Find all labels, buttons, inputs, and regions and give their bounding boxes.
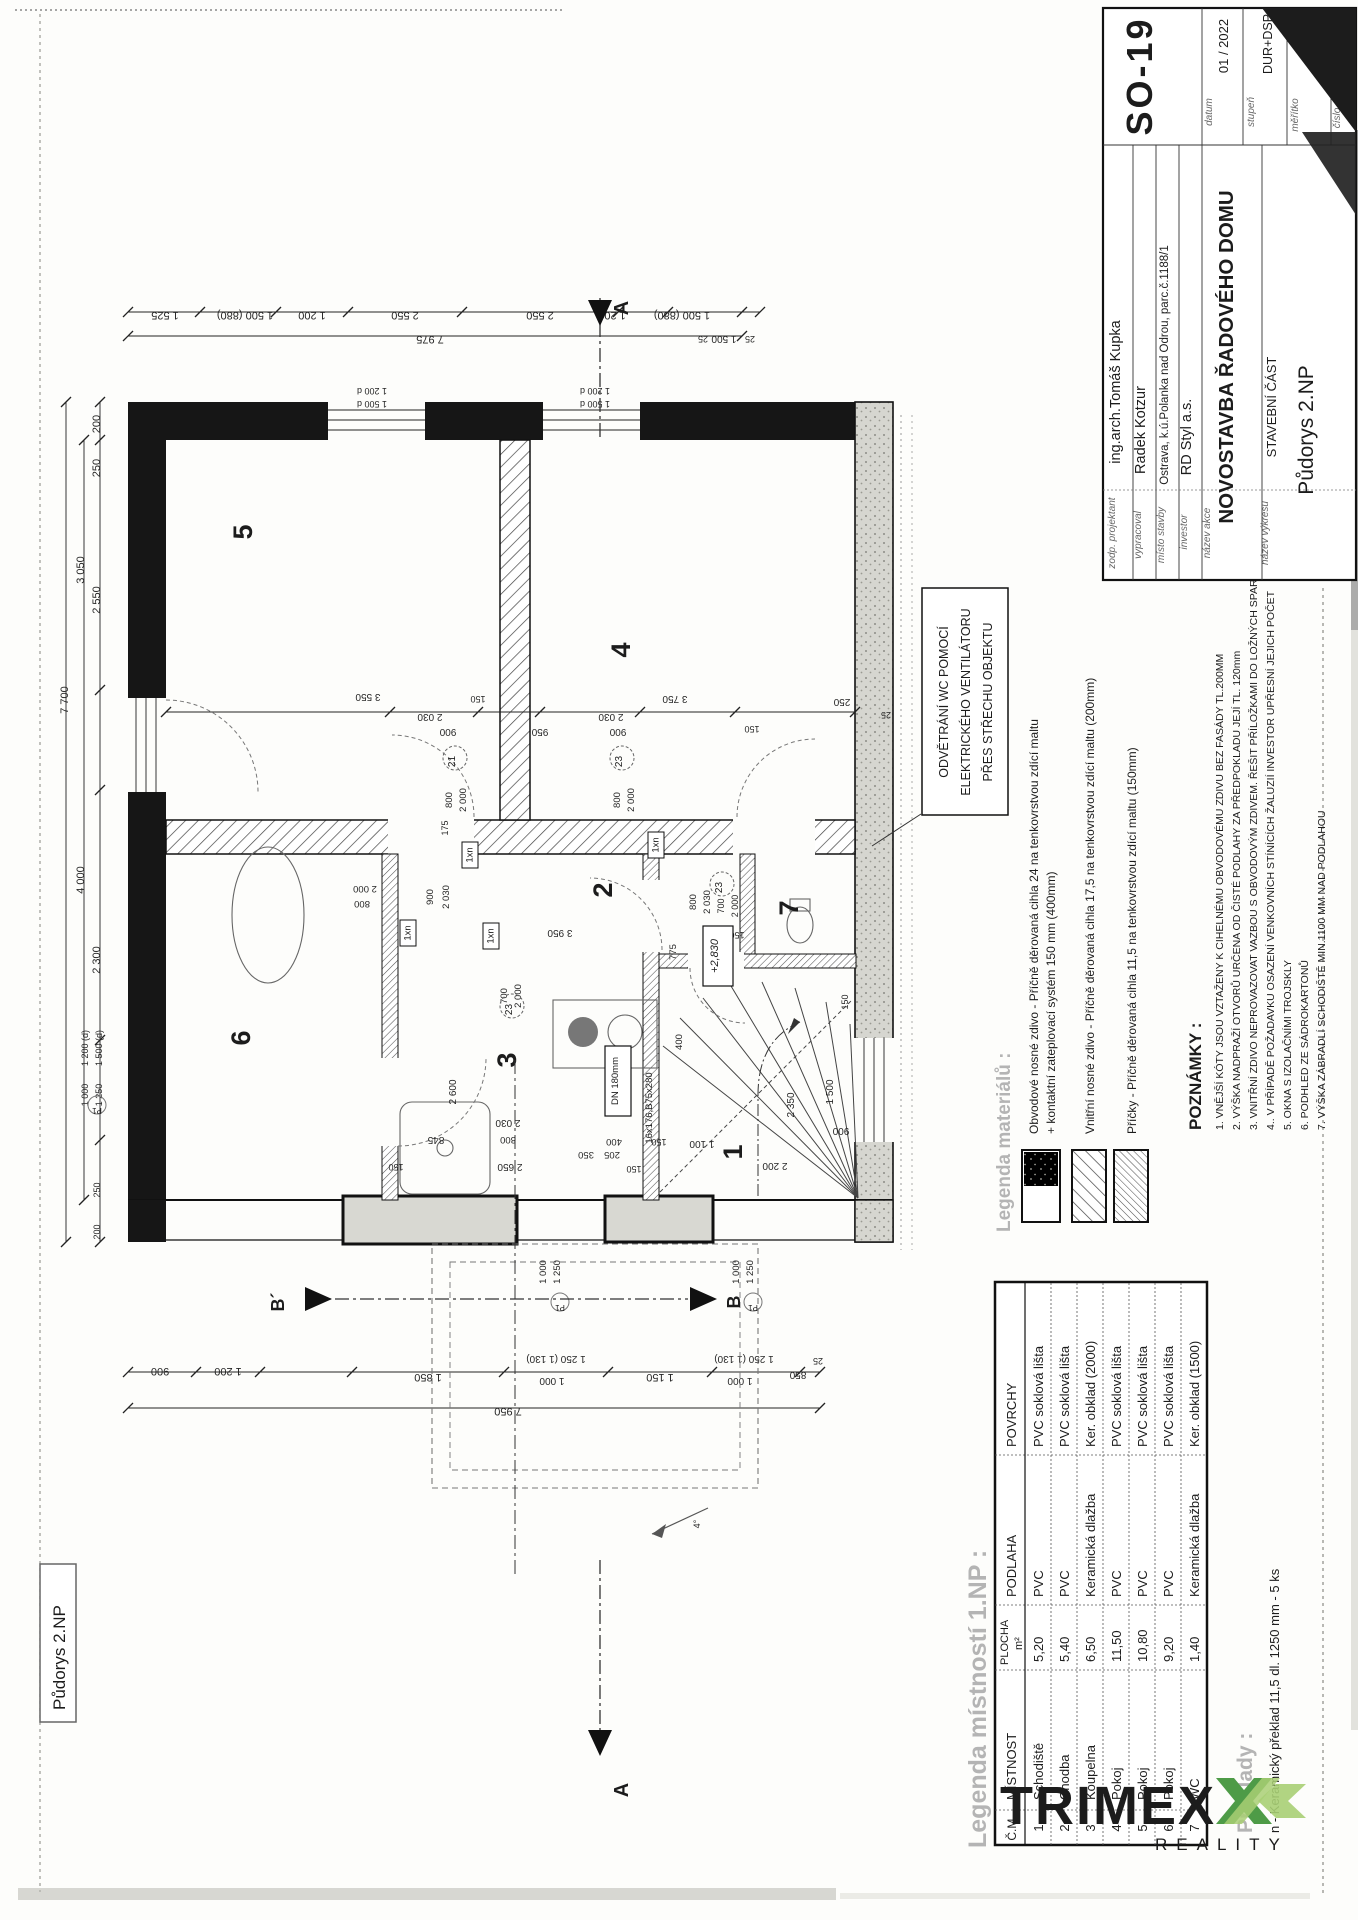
room-number: 6 xyxy=(226,1030,256,1045)
misto-value: Ostrava, k.ú.Polanka nad Odrou, parc.č.1… xyxy=(1159,245,1171,485)
table-cell-povrchy: Ker. obklad (2000) xyxy=(1083,1341,1098,1447)
table-cell-podlaha: PVC xyxy=(1031,1570,1046,1597)
dimension-text: 150 xyxy=(470,694,485,704)
door-opening xyxy=(640,880,662,952)
table-cell-podlaha: PVC xyxy=(1109,1570,1124,1597)
dimension-text: 1 200 xyxy=(214,1365,242,1377)
dimension-text: 400 xyxy=(606,1136,622,1147)
bathtub xyxy=(232,847,304,983)
dimension-text: 1 500 (880) xyxy=(654,309,710,321)
materials-legend: Legenda materiálů : Obvodové nosné zdivo… xyxy=(994,678,1148,1232)
dimension-text: 2 550 xyxy=(526,309,554,321)
room-number: 7 xyxy=(774,900,804,915)
dimension-text: 1 200 (d) xyxy=(80,1030,90,1066)
dimension-text: 1 150 xyxy=(646,1371,674,1383)
nazev-vykresu-label: název výkresu xyxy=(1260,501,1271,565)
french-window-1 xyxy=(343,1196,517,1244)
dimension-text: 2 030 xyxy=(598,711,623,722)
section-b-arrow xyxy=(690,1287,717,1311)
dimension-text: 400 xyxy=(674,1034,685,1050)
vent-callout: ODVĚTRÁNÍ WC POMOCÍ ELEKTRICKÉHO VENTILÁ… xyxy=(922,588,1008,815)
dimension-text: 1 250 xyxy=(745,1260,756,1284)
projektant-label: zodp. projektant xyxy=(1107,496,1118,569)
table-cell-plocha: 5,40 xyxy=(1057,1637,1072,1662)
table-cell-povrchy: PVC soklová lišta xyxy=(1161,1345,1176,1447)
dimension-text: 900 xyxy=(609,726,626,737)
dimension-text: 1 200 d xyxy=(357,386,387,396)
dimension-text: 2 000 xyxy=(458,788,469,812)
door-tag-number: 23 xyxy=(714,882,725,894)
swatch-exterior-insulation xyxy=(1024,1152,1058,1186)
nazev-akce-label: název akce xyxy=(1202,507,1213,558)
dimension-text: 1 850 xyxy=(414,1371,442,1383)
dimension-text: 2 030 xyxy=(417,711,442,722)
door-tag-number: 23 xyxy=(504,1004,515,1016)
room-number: 3 xyxy=(492,1052,522,1067)
materials-legend-title: Legenda materiálů : xyxy=(994,1053,1015,1233)
dimension-text: 775 xyxy=(668,944,679,960)
materials-item1-line2: + kontaktní zateplovací systém 150 mm (4… xyxy=(1044,872,1058,1134)
table-cell-podlaha: Keramická dlažba xyxy=(1187,1493,1202,1597)
frame-label-box: Půdorys 2.NP xyxy=(40,1564,76,1722)
dimension-text: 2 600 xyxy=(448,1079,459,1104)
dimension-text: 845 xyxy=(427,1134,444,1145)
dimension-text: 205 xyxy=(604,1149,620,1160)
position-tag-text: P1 xyxy=(555,1303,565,1312)
window-right xyxy=(852,1038,896,1142)
room-number: 5 xyxy=(228,524,258,539)
dimension-text: 800 xyxy=(612,792,623,808)
dimension-text: 900 xyxy=(425,889,436,905)
level-label: +2,830 xyxy=(709,938,721,973)
materials-item2-line1: Vnitřní nosné zdivo - Příčně děrovaná ci… xyxy=(1083,678,1097,1134)
note-1: 1. VNĚJŠÍ KÓTY JSOU VZTAŽENY K CIHELNÉMU… xyxy=(1213,654,1226,1130)
note-3: 3. VNITŘNÍ ZDIVO NEPROVAZOVAT VAZBOU S O… xyxy=(1247,579,1260,1130)
dimension-text: 1 500 xyxy=(825,1079,836,1104)
room-number: 4 xyxy=(606,642,636,657)
dimension-text: 3 950 xyxy=(547,927,572,938)
dimension-text: 2 000 xyxy=(353,883,377,894)
dimension-text: 250 xyxy=(91,459,103,477)
table-cell-plocha: 6,50 xyxy=(1083,1637,1098,1662)
room-legend-title: Legenda místností 1.NP : xyxy=(964,1550,992,1848)
door-opening xyxy=(379,1058,401,1146)
dimension-text: 1 500 xyxy=(711,333,736,344)
dimension-text: 1 500 d xyxy=(580,399,610,409)
table-header-plocha: PLOCHA xyxy=(999,1619,1011,1665)
wall-bottom xyxy=(128,1196,893,1244)
meritko-label: měřítko xyxy=(1290,98,1301,132)
dimension-text: 350 xyxy=(578,1149,594,1160)
table-header-povrchy: POVRCHY xyxy=(1004,1382,1019,1447)
table-cell-plocha: 9,20 xyxy=(1161,1637,1176,1662)
dimension-text: 800 xyxy=(444,792,455,808)
notes-title: POZNÁMKY : xyxy=(1186,1023,1205,1130)
stupen-label: stupeň xyxy=(1246,97,1257,127)
partition-6-3 xyxy=(382,854,398,1200)
note-7: 7. VÝŠKA ZÁBRADLÍ SCHODIŠTĚ MIN.1100 MM … xyxy=(1315,810,1328,1130)
lintel-label: 1xn xyxy=(486,928,497,943)
basin xyxy=(568,1017,598,1047)
dimension-text: 800 xyxy=(688,894,699,910)
table-header-plocha-m2: m² xyxy=(1013,1637,1025,1650)
investor-label: investor xyxy=(1179,514,1190,550)
dimension-text: 2 000 xyxy=(730,895,740,918)
vypracoval-value: Radek Kotzur xyxy=(1133,386,1149,474)
note-6: 6. PODHLED ZE SÁDROKARTONŮ xyxy=(1298,960,1311,1130)
note-5: 5. OKNA S IZOLAČNÍMI TROJSKLY xyxy=(1281,960,1294,1130)
dimension-text: 150 xyxy=(388,1162,403,1172)
dimension-text: 3 050 xyxy=(75,556,87,584)
dimension-text: 2 030 xyxy=(495,1117,520,1128)
dn-label: DN 180mm xyxy=(610,1057,621,1105)
stair-arrow xyxy=(788,1018,800,1034)
dimension-texts: 1 5251 500 (880)1 2002 5502 5501 2001 50… xyxy=(59,309,891,1528)
vent-callout-line1: ODVĚTRÁNÍ WC POMOCÍ xyxy=(936,626,951,778)
dimension-text: 150 xyxy=(744,724,759,734)
basin xyxy=(608,1015,642,1049)
dimension-text: 1 250 xyxy=(94,1084,104,1107)
dimension-text: 3 550 xyxy=(355,691,380,702)
trimex-tagline-text: REALITY xyxy=(1155,1835,1289,1854)
section-a-label-top: A xyxy=(611,301,633,315)
lintel-label: 1xn xyxy=(465,847,476,862)
drawing-canvas: 1 5251 500 (880)1 2002 5502 5501 2001 50… xyxy=(0,0,1358,1920)
lower-outline xyxy=(432,1060,758,1575)
dimension-text: 800 xyxy=(500,1134,516,1145)
trimex-x-icon xyxy=(1216,1778,1306,1824)
datum-label: datum xyxy=(1204,98,1215,126)
dimension-text: 1 525 xyxy=(151,309,179,321)
door-tag-number: 21 xyxy=(447,756,458,768)
window-left xyxy=(125,698,169,792)
table-cell-podlaha: PVC xyxy=(1161,1570,1176,1597)
dimension-text: 2 030 xyxy=(702,890,713,914)
position-tag-text: P1 xyxy=(748,1303,758,1312)
section-a-label-bottom: A xyxy=(611,1783,633,1797)
swatch-inner-bearing-wall xyxy=(1072,1150,1106,1222)
misto-label: místo stavby xyxy=(1156,506,1167,563)
vent-callout-line2: ELEKTRICKÉHO VENTILÁTORU xyxy=(958,608,973,795)
section-b-prime-label: B´ xyxy=(268,1293,288,1312)
dimension-text: 700 xyxy=(716,898,726,913)
investor-value: RD Styl a.s. xyxy=(1179,399,1195,476)
lintel-label: 1xn xyxy=(651,837,662,852)
dimension-text: 850 xyxy=(789,1369,806,1380)
dimension-text: 150 xyxy=(626,1164,641,1174)
title-block: SO-19 datum 01 / 2022 stupeň DUR+DSP měř… xyxy=(1103,8,1356,580)
dimension-text: 250 xyxy=(92,1182,102,1197)
dimension-text: 25 xyxy=(745,334,755,344)
dimension-text: 1 250 xyxy=(552,1260,563,1284)
room-table: Č.M. MÍSTNOST PLOCHA m² PODLAHA POVRCHY … xyxy=(995,1282,1207,1845)
nazev-akce-value: NOVOSTAVBA ŘADOVÉHO DOMU xyxy=(1214,190,1238,523)
stavebni-cast: STAVEBNÍ ČÁST xyxy=(1264,357,1279,458)
room-number: 2 xyxy=(588,882,618,897)
dimension-text: 900 xyxy=(151,1365,169,1377)
dimension-text: 2 550 xyxy=(391,309,419,321)
room-legend-title-text: Legenda místností 1.NP : xyxy=(964,1550,992,1848)
dimension-text: 7 975 xyxy=(416,333,444,345)
dimension-text: 2 350 xyxy=(786,1092,797,1117)
dimension-text: 1 200 d xyxy=(580,386,610,396)
section-b-prime-arrow xyxy=(305,1287,332,1311)
dimension-text: 900 xyxy=(439,726,456,737)
dimension-text: 2 200 xyxy=(762,1160,787,1171)
dimension-text: 2 300 xyxy=(91,946,103,974)
drawing-number: SO-19 xyxy=(1119,16,1160,135)
table-cell-podlaha: Keramická dlažba xyxy=(1083,1493,1098,1597)
table-cell-podlaha: PVC xyxy=(1057,1570,1072,1597)
note-4: 4.. V PŘÍPADĚ POŽADAVKU OSAZENÍ VENKOVNÍ… xyxy=(1264,590,1277,1130)
materials-item1-line1: Obvodové nosné zdivo - Příčně děrovaná c… xyxy=(1027,719,1041,1134)
french-window-2 xyxy=(605,1196,713,1242)
table-cell-povrchy: PVC soklová lišta xyxy=(1031,1345,1046,1447)
stair-spec: 16x176,B75x280 xyxy=(644,1072,655,1143)
dimension-text: 250 xyxy=(833,696,850,707)
shower xyxy=(400,1102,490,1194)
scanned-drawing-page: 1 5251 500 (880)1 2002 5502 5501 2001 50… xyxy=(0,0,1358,1920)
dimension-text: 1 000 xyxy=(538,1260,549,1284)
dimension-text: 1 250 (1 130) xyxy=(714,1353,774,1364)
dimension-text: 4 000 xyxy=(75,866,87,894)
note-2: 2. VÝŠKA NADPRAŽÍ OTVORŮ URČENA OD ČISTÉ… xyxy=(1230,651,1243,1130)
table-cell-plocha: 5,20 xyxy=(1031,1637,1046,1662)
dimension-text: 1 000 xyxy=(539,1375,564,1386)
vykres-title: Půdorys 2.NP xyxy=(1295,365,1318,495)
partition-wc xyxy=(740,854,755,966)
notes-block: POZNÁMKY : 1. VNĚJŠÍ KÓTY JSOU VZTAŽENY … xyxy=(1186,579,1328,1130)
dimension-text: 800 xyxy=(354,898,370,909)
room-number: 1 xyxy=(718,1144,748,1159)
dimension-text: 7 950 xyxy=(494,1405,522,1417)
table-cell-povrchy: PVC soklová lišta xyxy=(1057,1345,1072,1447)
table-cell-povrchy: PVC soklová lišta xyxy=(1135,1345,1150,1447)
table-cell-plocha: 1,40 xyxy=(1187,1637,1202,1662)
vent-callout-line3: PŘES STŘECHU OBJEKTU xyxy=(980,622,995,781)
dimension-text: 3 750 xyxy=(662,693,687,704)
dimension-text: 2 030 xyxy=(441,885,452,909)
dimension-text: 2 650 xyxy=(497,1161,522,1172)
table-cell-povrchy: PVC soklová lišta xyxy=(1109,1345,1124,1447)
dimension-text: 200 xyxy=(92,1224,102,1239)
dimension-text: 25 xyxy=(813,1356,823,1366)
section-a-arrow-bottom xyxy=(588,1730,612,1756)
vypracoval-label: vypracoval xyxy=(1133,510,1144,559)
dimension-text: 1 500 (d) xyxy=(94,1030,104,1066)
dimension-text: 7 700 xyxy=(59,686,71,714)
dimension-text: 175 xyxy=(440,820,450,835)
wall-left xyxy=(128,402,166,1242)
section-b-label: B xyxy=(724,1296,744,1309)
dimension-text: 150 xyxy=(840,994,850,1009)
swatch-partition-wall xyxy=(1114,1150,1148,1222)
position-tag-text: P1 xyxy=(92,1106,102,1115)
slope-arrow xyxy=(652,1524,666,1538)
dimension-text: 2 000 xyxy=(626,788,637,812)
table-cell-plocha: 10,80 xyxy=(1135,1629,1150,1662)
door-opening xyxy=(388,817,474,857)
dimension-text: 200 xyxy=(91,415,103,433)
wall-top xyxy=(128,402,855,440)
table-cell-plocha: 11,50 xyxy=(1109,1630,1124,1662)
dimension-text: 1 500 d xyxy=(357,399,387,409)
table-cell-podlaha: PVC xyxy=(1135,1570,1150,1597)
dimension-text: 950 xyxy=(531,726,548,737)
dimension-text: 4° xyxy=(692,1519,702,1528)
stupen-value: DUR+DSP xyxy=(1261,14,1275,74)
table-cell-povrchy: Ker. obklad (1500) xyxy=(1187,1341,1202,1447)
dimension-text: 2 550 xyxy=(91,586,103,614)
materials-item3-line1: Příčky - Příčně děrovaná cihla 11,5 na t… xyxy=(1125,747,1139,1134)
datum-value: 01 / 2022 xyxy=(1216,19,1231,73)
lintel-label: 1xn xyxy=(403,925,414,940)
table-header-podlaha: PODLAHA xyxy=(1004,1535,1019,1597)
dimension-text: 1 100 xyxy=(689,1138,714,1149)
projektant-value: ing.arch.Tomáš Kupka xyxy=(1108,319,1124,463)
trimex-brand-text: TRIMEX xyxy=(1000,1776,1216,1836)
dimension-text: 1 250 (1 130) xyxy=(526,1353,586,1364)
dimension-text: 25 xyxy=(698,334,708,344)
dimension-text: 1 500 (880) xyxy=(217,309,273,321)
door-opening xyxy=(733,817,815,857)
dimension-text: 1 200 xyxy=(298,309,326,321)
door-tag-number: 23 xyxy=(614,756,625,768)
dimension-text: 900 xyxy=(832,1125,849,1136)
frame-label-text: Půdorys 2.NP xyxy=(50,1605,69,1710)
wall-interior-54 xyxy=(500,440,530,820)
dimension-text: 25 xyxy=(881,710,891,720)
